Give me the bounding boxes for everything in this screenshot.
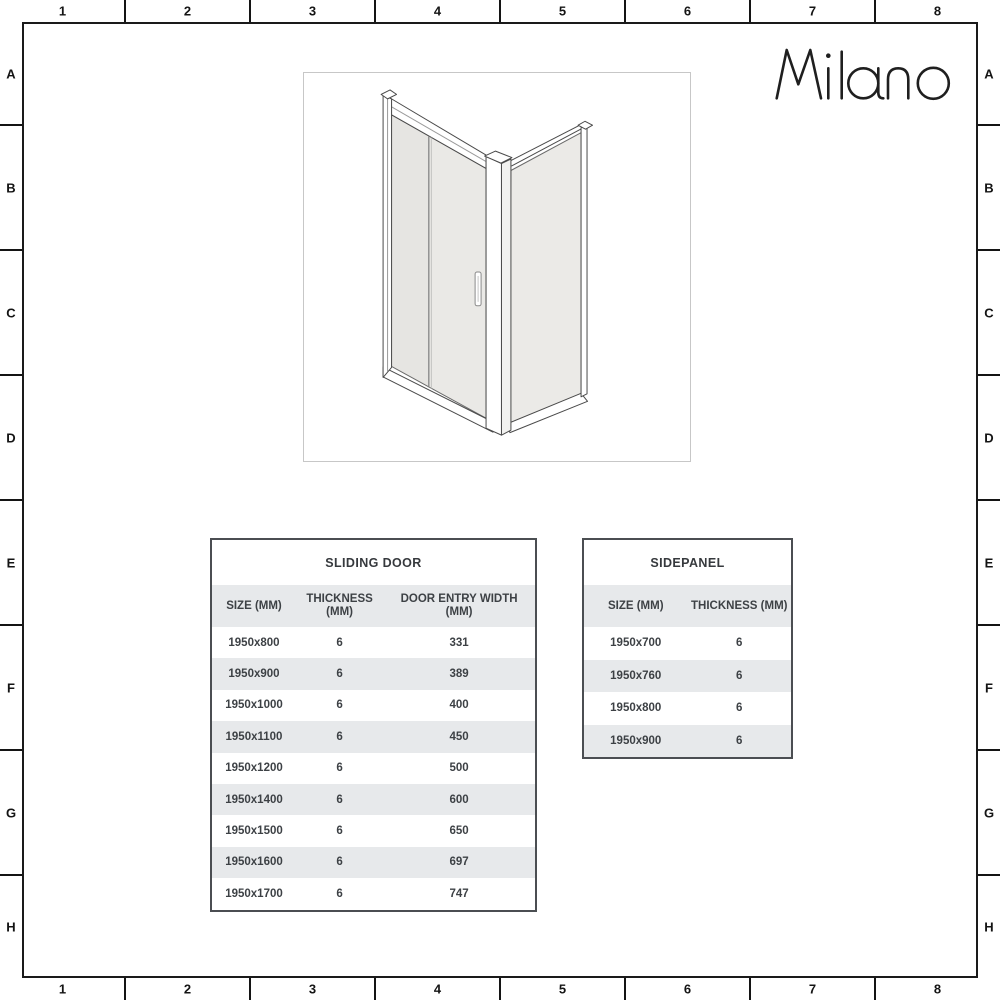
grid-row-label: F <box>7 681 15 694</box>
grid-row-label: F <box>985 681 993 694</box>
table-cell: 1950x1400 <box>212 784 296 815</box>
table-row: 1950x7006 <box>584 627 791 660</box>
table-cell: 1950x760 <box>584 660 688 693</box>
grid-tick <box>0 249 22 252</box>
grid-row-label: H <box>984 920 993 933</box>
table-cell: 6 <box>296 658 383 689</box>
grid-tick <box>978 249 1000 252</box>
grid-tick <box>749 0 752 22</box>
table-cell: 500 <box>383 753 535 784</box>
grid-row-label: C <box>984 306 993 319</box>
table-cell: 650 <box>383 815 535 846</box>
grid-column-label: 3 <box>309 5 316 18</box>
grid-tick <box>499 0 502 22</box>
table-cell: 1950x900 <box>584 725 688 758</box>
grid-tick <box>0 624 22 627</box>
table-cell: 6 <box>296 721 383 752</box>
table-cell: 1950x1000 <box>212 690 296 721</box>
table-row: 1950x11006450 <box>212 721 535 752</box>
table-cell: 1950x1500 <box>212 815 296 846</box>
table-cell: 747 <box>383 878 535 909</box>
door-handle <box>475 272 481 306</box>
table-cell: 1950x1200 <box>212 753 296 784</box>
grid-column-label: 8 <box>934 983 941 996</box>
table-row: 1950x9006 <box>584 725 791 758</box>
grid-tick <box>874 978 877 1000</box>
column-header: SIZE (MM) <box>212 585 296 627</box>
sidepanel-table: SIDEPANEL SIZE (MM)THICKNESS (MM) 1950x7… <box>582 538 793 759</box>
table-row: 1950x9006389 <box>212 658 535 689</box>
grid-column-label: 7 <box>809 983 816 996</box>
grid-column-label: 8 <box>934 5 941 18</box>
grid-tick <box>249 978 252 1000</box>
table-cell: 450 <box>383 721 535 752</box>
table-cell: 6 <box>296 784 383 815</box>
grid-column-label: 4 <box>434 5 441 18</box>
grid-row-label: E <box>985 556 994 569</box>
table-cell: 6 <box>296 847 383 878</box>
grid-tick <box>978 374 1000 377</box>
table-row: 1950x12006500 <box>212 753 535 784</box>
table-cell: 6 <box>296 690 383 721</box>
grid-tick <box>374 0 377 22</box>
table-body: 1950x70061950x76061950x80061950x9006 <box>584 627 791 757</box>
table-header-row: SIZE (MM)THICKNESS (MM) <box>584 585 791 627</box>
table-cell: 6 <box>688 725 792 758</box>
grid-tick <box>124 978 127 1000</box>
grid-row-label: E <box>7 556 16 569</box>
grid-row-label: H <box>6 920 15 933</box>
table-cell: 6 <box>296 815 383 846</box>
grid-column-label: 1 <box>59 5 66 18</box>
grid-tick <box>499 978 502 1000</box>
table-cell: 1950x700 <box>584 627 688 660</box>
table-cell: 389 <box>383 658 535 689</box>
table-cell: 1950x1700 <box>212 878 296 909</box>
grid-tick <box>978 124 1000 127</box>
table-cell: 6 <box>688 627 792 660</box>
grid-row-label: D <box>984 431 993 444</box>
grid-row-label: B <box>6 181 15 194</box>
table-title: SIDEPANEL <box>584 540 791 585</box>
table-row: 1950x8006331 <box>212 627 535 658</box>
table-body: 1950x80063311950x90063891950x10006400195… <box>212 627 535 910</box>
grid-tick <box>749 978 752 1000</box>
table-title: SLIDING DOOR <box>212 540 535 585</box>
table-cell: 697 <box>383 847 535 878</box>
grid-row-label: D <box>6 431 15 444</box>
table-cell: 331 <box>383 627 535 658</box>
table-cell: 6 <box>688 660 792 693</box>
table-header-row: SIZE (MM)THICKNESS (MM)DOOR ENTRY WIDTH … <box>212 585 535 627</box>
column-header: THICKNESS (MM) <box>296 585 383 627</box>
grid-tick <box>0 374 22 377</box>
sliding-door-drawing <box>381 90 493 432</box>
grid-row-label: C <box>6 306 15 319</box>
grid-tick <box>624 0 627 22</box>
table-row: 1950x7606 <box>584 660 791 693</box>
grid-column-label: 4 <box>434 983 441 996</box>
grid-tick <box>978 624 1000 627</box>
column-header: THICKNESS (MM) <box>688 585 792 627</box>
grid-tick <box>0 749 22 752</box>
grid-row-label: G <box>6 806 16 819</box>
table-row: 1950x17006747 <box>212 878 535 909</box>
grid-tick <box>249 0 252 22</box>
table-cell: 6 <box>296 627 383 658</box>
drawing-sheet: 1122334455667788AABBCCDDEEFFGGHH <box>0 0 1000 1000</box>
grid-tick <box>124 0 127 22</box>
table-row: 1950x10006400 <box>212 690 535 721</box>
grid-column-label: 5 <box>559 983 566 996</box>
grid-column-label: 2 <box>184 5 191 18</box>
grid-tick <box>374 978 377 1000</box>
table-row: 1950x14006600 <box>212 784 535 815</box>
table-cell: 1950x800 <box>212 627 296 658</box>
table-cell: 1950x1100 <box>212 721 296 752</box>
grid-row-label: A <box>984 67 993 80</box>
column-header: SIZE (MM) <box>584 585 688 627</box>
grid-column-label: 3 <box>309 983 316 996</box>
table-cell: 600 <box>383 784 535 815</box>
table-cell: 6 <box>296 753 383 784</box>
side-panel-drawing <box>507 121 592 432</box>
grid-column-label: 5 <box>559 5 566 18</box>
corner-post-drawing <box>485 151 512 435</box>
grid-row-label: B <box>984 181 993 194</box>
table-cell: 400 <box>383 690 535 721</box>
shower-enclosure-drawing <box>304 73 690 461</box>
grid-column-label: 7 <box>809 5 816 18</box>
table-row: 1950x15006650 <box>212 815 535 846</box>
grid-tick <box>0 124 22 127</box>
table-cell: 6 <box>688 692 792 725</box>
grid-column-label: 6 <box>684 5 691 18</box>
table-cell: 1950x800 <box>584 692 688 725</box>
milano-logo-icon <box>740 42 955 112</box>
product-drawing-box <box>303 72 691 462</box>
grid-tick <box>978 874 1000 877</box>
table-row: 1950x16006697 <box>212 847 535 878</box>
grid-tick <box>978 499 1000 502</box>
table-cell: 6 <box>296 878 383 909</box>
column-header: DOOR ENTRY WIDTH (MM) <box>383 585 535 627</box>
grid-tick <box>978 749 1000 752</box>
grid-column-label: 6 <box>684 983 691 996</box>
table-cell: 1950x900 <box>212 658 296 689</box>
grid-tick <box>874 0 877 22</box>
grid-tick <box>624 978 627 1000</box>
table-cell: 1950x1600 <box>212 847 296 878</box>
grid-row-label: G <box>984 806 994 819</box>
grid-column-label: 2 <box>184 983 191 996</box>
grid-tick <box>0 499 22 502</box>
grid-column-label: 1 <box>59 983 66 996</box>
grid-tick <box>0 874 22 877</box>
table-row: 1950x8006 <box>584 692 791 725</box>
sliding-door-table: SLIDING DOOR SIZE (MM)THICKNESS (MM)DOOR… <box>210 538 537 912</box>
brand-logo <box>740 42 955 112</box>
grid-row-label: A <box>6 67 15 80</box>
